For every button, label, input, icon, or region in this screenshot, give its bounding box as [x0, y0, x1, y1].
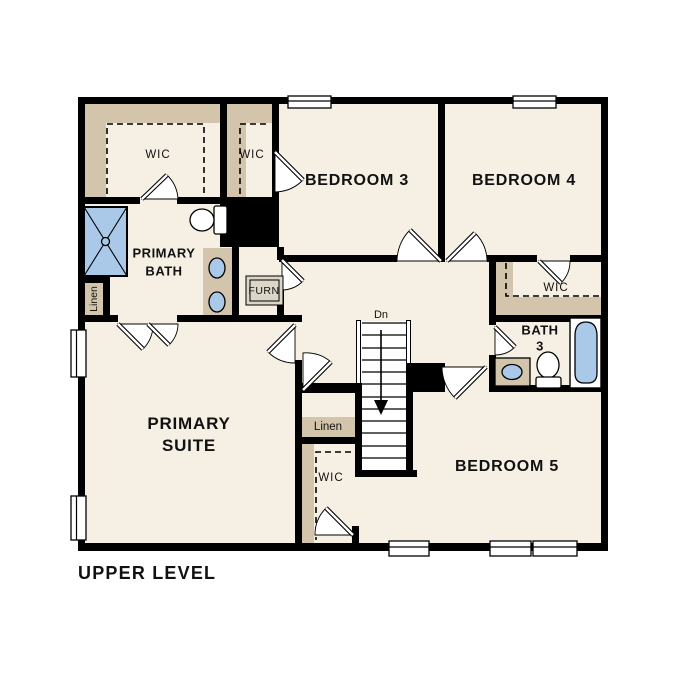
- closet-shelf: [302, 444, 314, 543]
- room-label-bedroom4-wic: WIC: [543, 282, 568, 294]
- stair-rail: [406, 320, 411, 365]
- room-label-linen-bath: Linen: [88, 286, 100, 312]
- wall: [302, 437, 362, 444]
- wall: [355, 390, 362, 477]
- vanity-counter: [203, 248, 232, 315]
- chase-mass: [406, 363, 445, 392]
- wall: [103, 283, 110, 315]
- wall: [570, 255, 608, 262]
- wall: [438, 97, 445, 262]
- wall: [85, 197, 140, 204]
- room-label-bedroom5-wic: WIC: [318, 472, 343, 484]
- wall: [177, 197, 279, 204]
- room-label-bedroom4: BEDROOM 4: [472, 172, 576, 190]
- room-label-primary-suite-2: SUITE: [162, 436, 216, 456]
- wall: [78, 97, 85, 551]
- room-label-bath3-2: 3: [536, 339, 544, 354]
- room-label-bedroom5: BEDROOM 5: [455, 458, 559, 476]
- wall: [78, 315, 118, 322]
- wall: [279, 255, 397, 262]
- wall: [487, 255, 537, 262]
- wall: [78, 97, 608, 104]
- wall: [489, 355, 496, 392]
- wall: [295, 383, 362, 393]
- wall: [601, 97, 608, 551]
- room-label-furnace: FURN: [248, 285, 279, 297]
- wall: [355, 470, 417, 477]
- wall: [220, 97, 227, 204]
- closet-shelf: [85, 104, 106, 197]
- closet-shelf: [496, 297, 601, 315]
- room-label-bedroom3: BEDROOM 3: [305, 172, 409, 190]
- floor-plan: WIC WIC BEDROOM 3 BEDROOM 4 WIC PRIMARY …: [0, 0, 687, 687]
- wall: [496, 385, 608, 392]
- stair-direction-label: Dn: [374, 309, 388, 321]
- room-label-bedroom3-wic: WIC: [239, 149, 264, 161]
- wall: [352, 526, 359, 543]
- stair-rail: [356, 320, 361, 385]
- room-label-primary-suite-1: PRIMARY: [147, 414, 230, 434]
- plan-title: UPPER LEVEL: [78, 563, 216, 584]
- room-label-primary-bath-2: BATH: [145, 264, 182, 279]
- room-label-primary-wic: WIC: [145, 149, 170, 161]
- room-label-primary-bath-1: PRIMARY: [133, 246, 196, 261]
- wall: [78, 543, 608, 551]
- room-label-bath3-1: BATH: [521, 323, 558, 338]
- wall: [78, 276, 110, 283]
- wall: [177, 315, 302, 322]
- wall: [489, 315, 608, 322]
- chase-mass: [220, 204, 279, 247]
- wall: [272, 97, 279, 204]
- wall: [232, 247, 239, 315]
- stairwell: [361, 321, 406, 470]
- room-label-linen-hall: Linen: [314, 421, 342, 433]
